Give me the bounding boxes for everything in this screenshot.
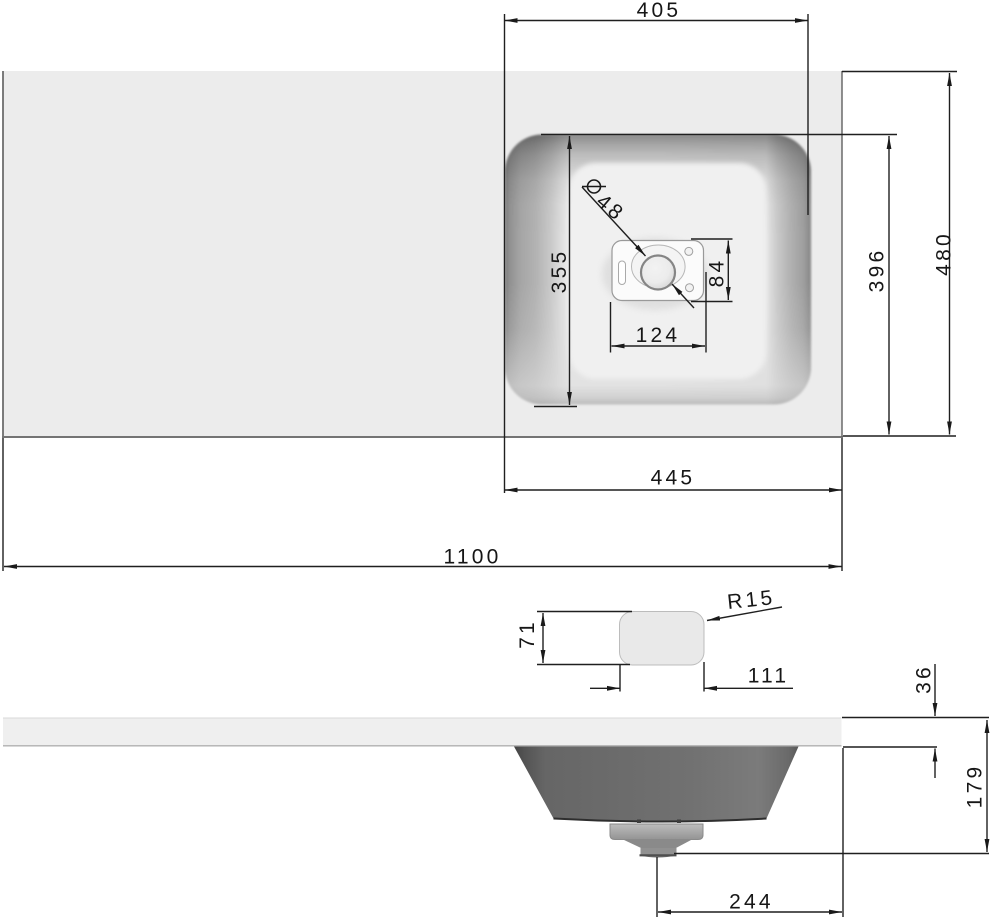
- svg-text:244: 244: [729, 891, 774, 914]
- svg-text:71: 71: [516, 619, 539, 649]
- svg-text:36: 36: [913, 664, 936, 694]
- svg-text:405: 405: [637, 0, 682, 22]
- svg-text:179: 179: [964, 764, 987, 809]
- svg-text:124: 124: [636, 324, 681, 347]
- svg-text:396: 396: [866, 248, 889, 293]
- svg-text:1100: 1100: [444, 546, 502, 569]
- svg-text:445: 445: [651, 467, 696, 490]
- svg-text:480: 480: [933, 231, 956, 276]
- svg-text:111: 111: [748, 665, 790, 688]
- svg-text:355: 355: [548, 249, 571, 294]
- svg-text:84: 84: [706, 258, 729, 288]
